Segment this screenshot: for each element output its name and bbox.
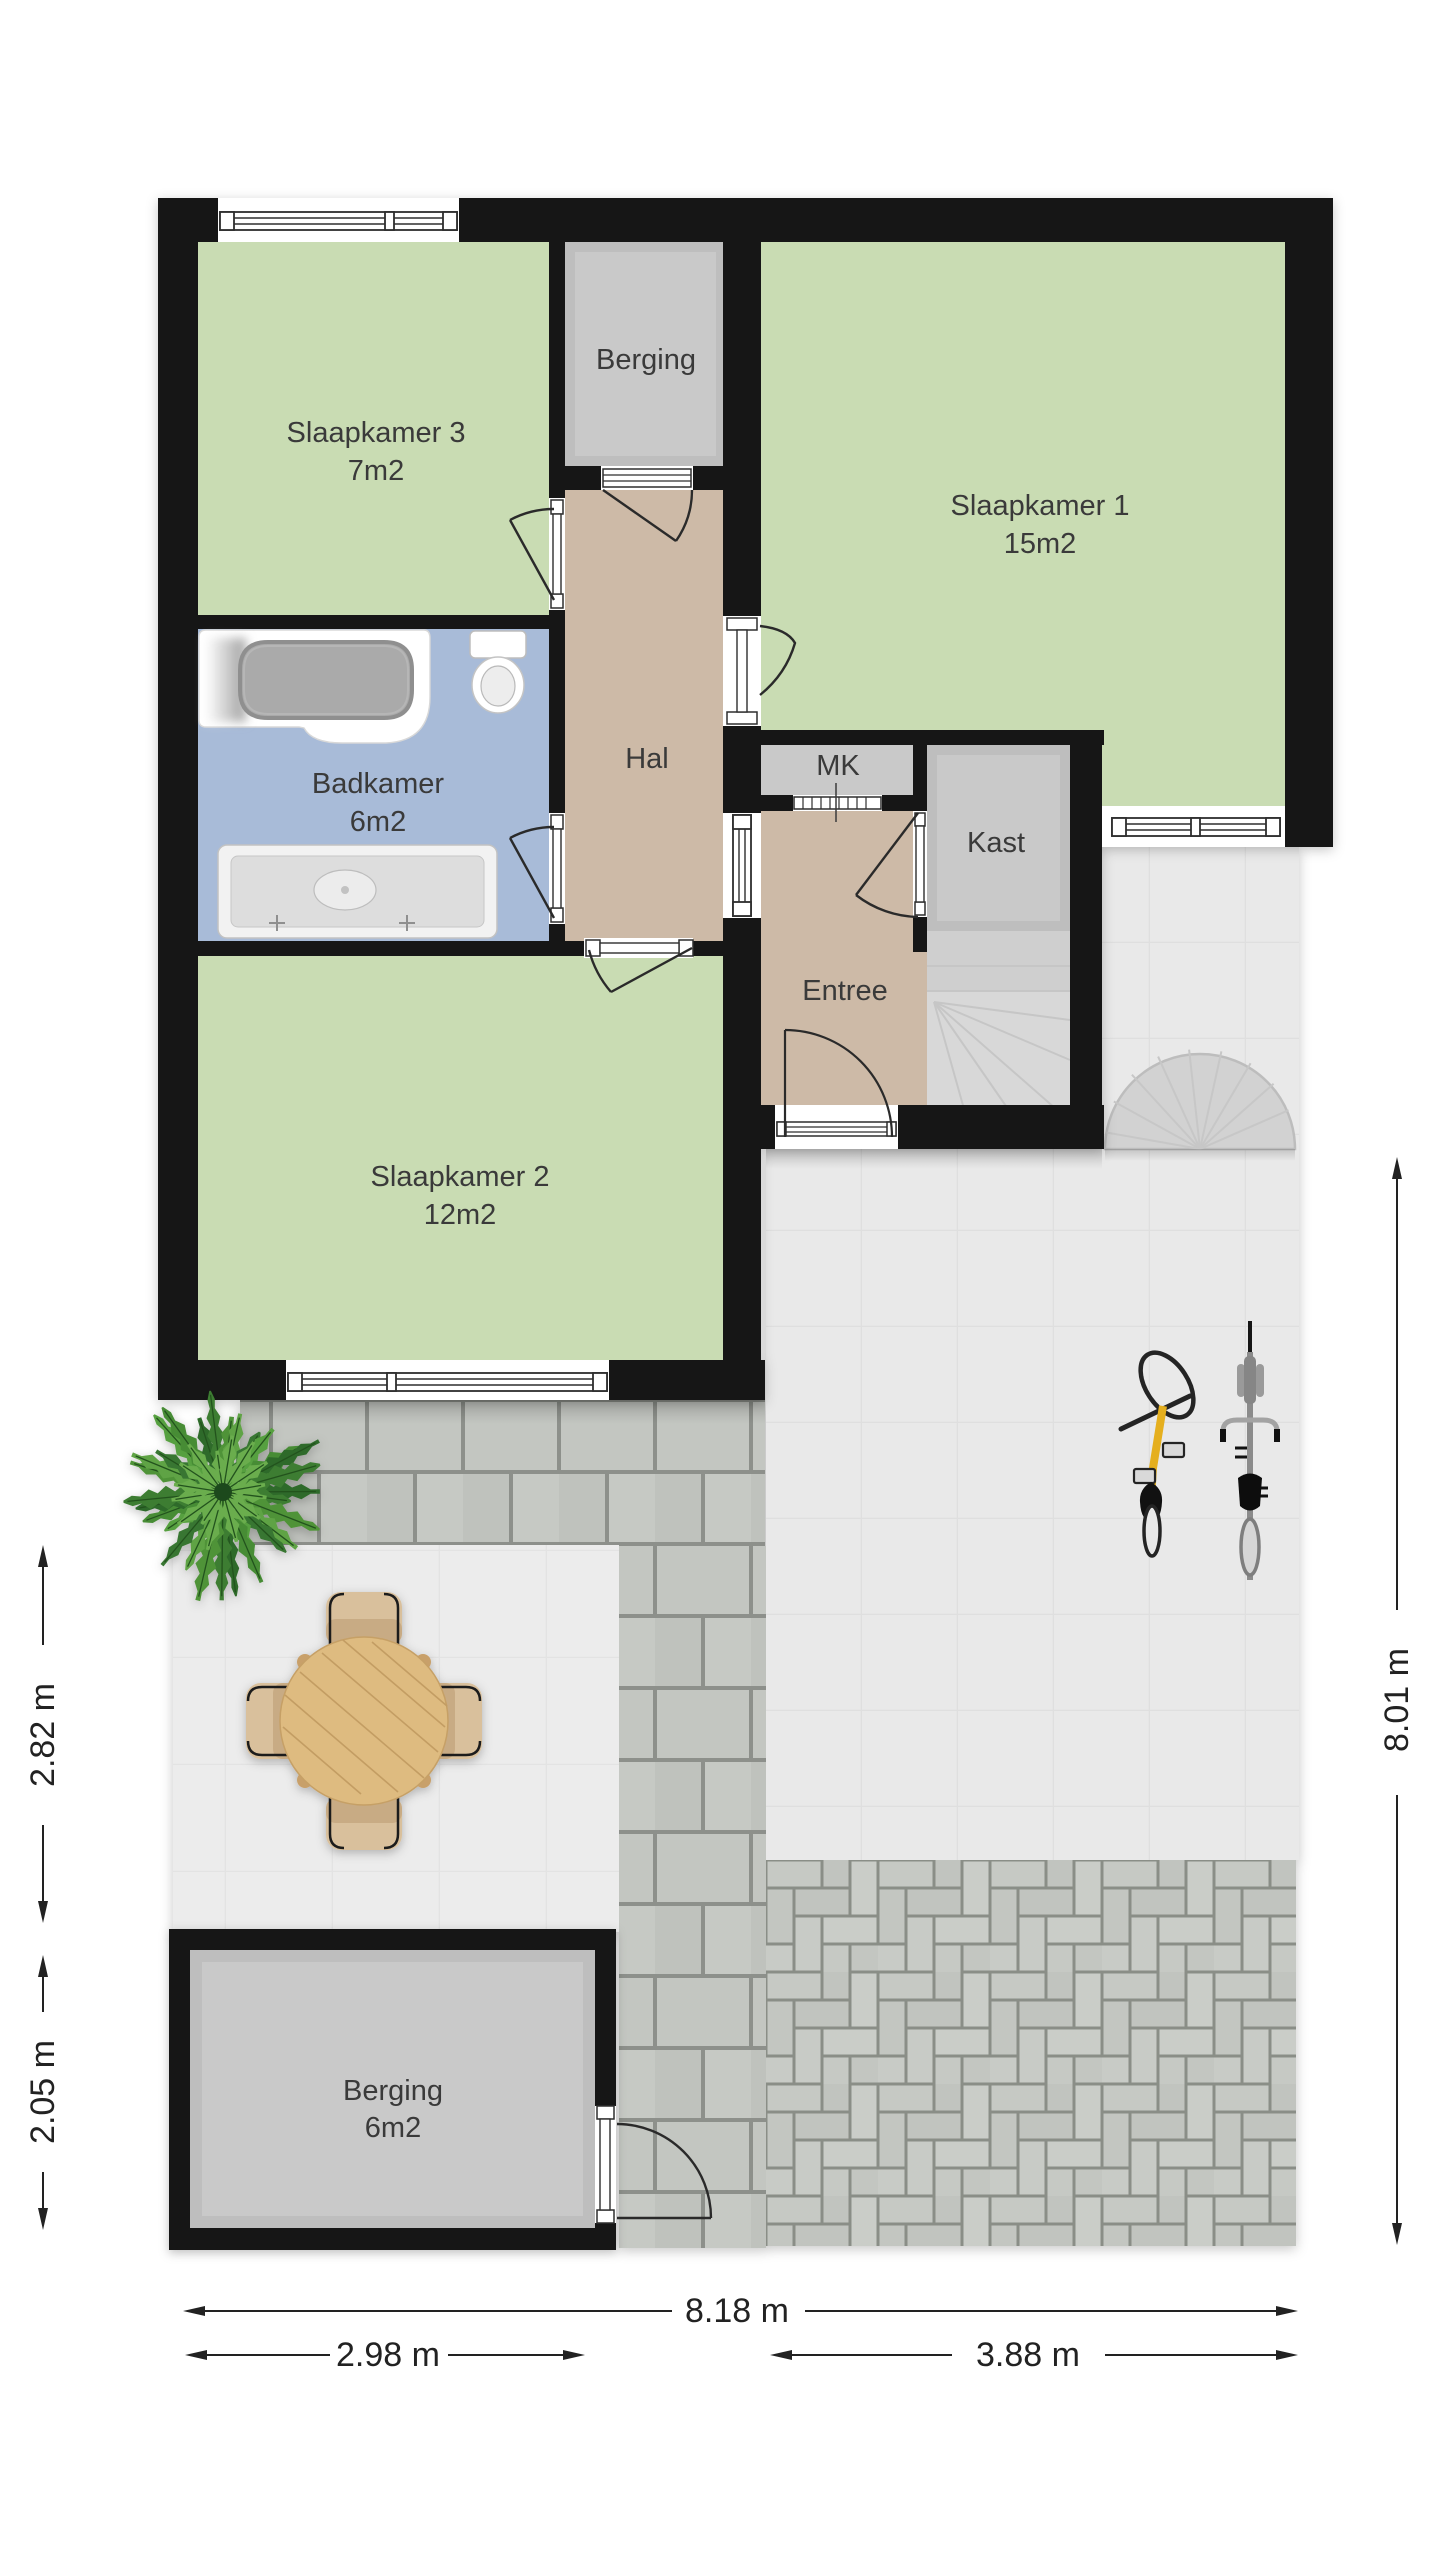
svg-text:Badkamer: Badkamer — [312, 768, 445, 800]
svg-text:6m2: 6m2 — [365, 2112, 421, 2144]
svg-text:Slaapkamer 3: Slaapkamer 3 — [287, 417, 466, 449]
svg-text:2.05 m: 2.05 m — [24, 2040, 62, 2144]
svg-text:Slaapkamer 2: Slaapkamer 2 — [371, 1161, 550, 1193]
svg-text:MK: MK — [816, 750, 860, 782]
svg-text:12m2: 12m2 — [424, 1199, 497, 1231]
svg-text:Hal: Hal — [625, 743, 669, 775]
svg-text:7m2: 7m2 — [348, 455, 404, 487]
svg-text:15m2: 15m2 — [1004, 528, 1077, 560]
svg-text:3.88 m: 3.88 m — [976, 2336, 1080, 2374]
svg-text:Entree: Entree — [802, 975, 887, 1007]
svg-text:Berging: Berging — [596, 344, 696, 376]
svg-text:8.18 m: 8.18 m — [685, 2292, 789, 2330]
svg-text:2.82 m: 2.82 m — [24, 1683, 62, 1787]
svg-text:Kast: Kast — [967, 827, 1025, 859]
svg-text:8.01 m: 8.01 m — [1378, 1648, 1416, 1752]
svg-text:Berging: Berging — [343, 2075, 443, 2107]
svg-text:6m2: 6m2 — [350, 806, 406, 838]
svg-text:2.98 m: 2.98 m — [336, 2336, 440, 2374]
svg-text:Slaapkamer 1: Slaapkamer 1 — [951, 490, 1130, 522]
